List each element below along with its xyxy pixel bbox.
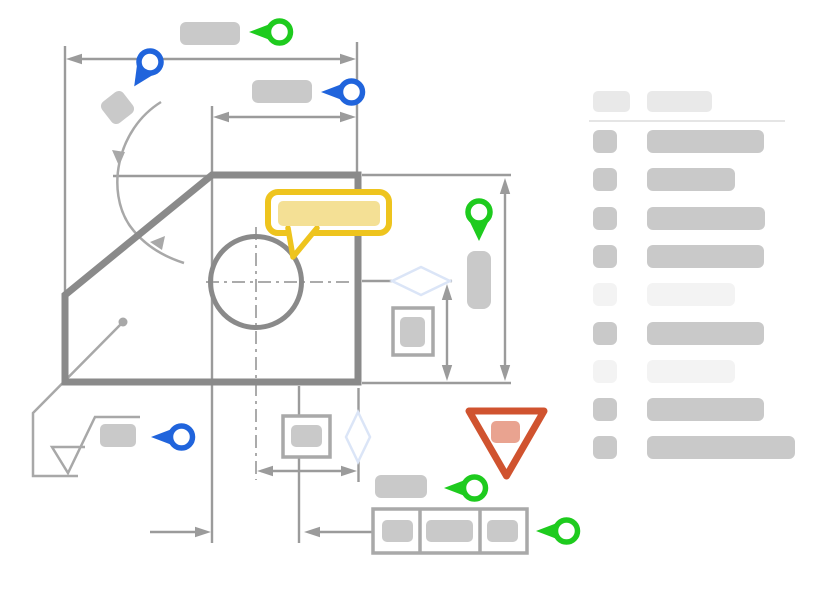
pin-ring-icon [341, 81, 363, 103]
annotation-workspace [0, 0, 827, 591]
dimension-top-overall [66, 54, 356, 64]
sidebar-row[interactable] [0, 322, 827, 345]
dimension-bottom [150, 527, 374, 537]
arrowhead-icon [341, 466, 357, 476]
row-swatch-icon [593, 168, 617, 191]
sidebar-row[interactable] [0, 130, 827, 153]
label-placeholder-rotated [99, 89, 137, 127]
row-label-placeholder [647, 436, 795, 459]
row-label-placeholder [647, 398, 764, 421]
arrowhead-icon [195, 527, 211, 537]
row-swatch-icon [593, 283, 617, 306]
arrowhead-icon [340, 112, 356, 122]
sidebar-row[interactable] [0, 398, 827, 421]
sidebar-row[interactable] [0, 283, 827, 306]
sidebar-row[interactable] [0, 436, 827, 459]
pin-overall-width[interactable] [249, 21, 291, 43]
fcf-cell-placeholder [487, 520, 518, 542]
sidebar-row[interactable] [0, 245, 827, 268]
pin-feature-control-frame[interactable] [536, 520, 578, 542]
arrowhead-icon [66, 54, 82, 64]
dimension-top-partial [213, 112, 356, 122]
sidebar-row[interactable] [0, 207, 827, 230]
row-swatch-icon [593, 398, 617, 421]
row-swatch-icon [593, 207, 617, 230]
row-swatch-icon [593, 322, 617, 345]
pin-angle[interactable] [125, 47, 165, 93]
pin-ring-icon [464, 477, 486, 499]
pin-ring-icon [556, 520, 578, 542]
feature-control-frame[interactable] [373, 509, 527, 553]
dimension-hole-offset [257, 466, 357, 476]
arrowhead-icon [213, 112, 229, 122]
row-label-placeholder [647, 283, 735, 306]
sidebar-row[interactable] [0, 360, 827, 383]
sidebar-header-icon [593, 91, 630, 112]
arrowhead-icon [304, 527, 320, 537]
row-swatch-icon [593, 245, 617, 268]
row-label-placeholder [647, 322, 764, 345]
row-label-placeholder [647, 245, 764, 268]
arrowhead-icon [257, 466, 273, 476]
fcf-cell-placeholder [382, 520, 413, 542]
label-placeholder-top [180, 22, 240, 45]
row-swatch-icon [593, 130, 617, 153]
arrowhead-icon [340, 54, 356, 64]
sidebar-header-label [647, 91, 712, 112]
fcf-cell-placeholder [426, 520, 473, 542]
pin-bottom-label[interactable] [444, 477, 486, 499]
row-label-placeholder [647, 207, 765, 230]
label-placeholder-bottom [375, 475, 427, 498]
row-swatch-icon [593, 360, 617, 383]
sidebar-divider [589, 120, 785, 122]
label-placeholder-partial [252, 80, 312, 103]
row-label-placeholder [647, 130, 764, 153]
pin-ring-icon [269, 21, 291, 43]
row-label-placeholder [647, 168, 735, 191]
sidebar-row[interactable] [0, 168, 827, 191]
row-label-placeholder [647, 360, 735, 383]
row-swatch-icon [593, 436, 617, 459]
pin-partial-width[interactable] [321, 81, 363, 103]
